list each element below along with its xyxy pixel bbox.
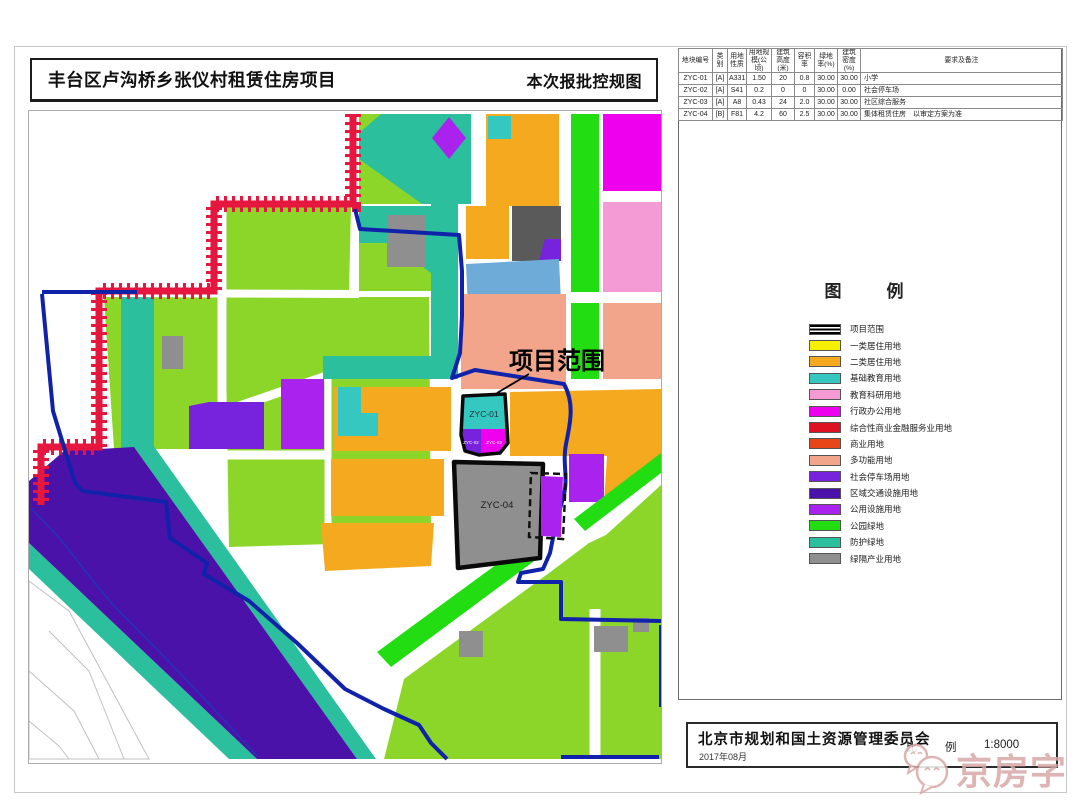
legend-label: 公用设施用地 — [850, 503, 901, 515]
plot-zyc03-label: ZYC-03 — [486, 440, 502, 445]
table-cell: 0.8 — [795, 73, 815, 85]
color-swatch — [809, 488, 841, 499]
legend-item: 一类居住用地 — [809, 337, 952, 353]
color-swatch — [809, 406, 841, 417]
table-cell: 30.00 — [838, 73, 861, 85]
table-cell: 30.00 — [838, 109, 861, 121]
watermark-text: 京房字 — [956, 743, 1067, 795]
table-cell: 0 — [772, 85, 795, 97]
table-cell: 30.00 — [815, 85, 838, 97]
table-cell: 0.00 — [838, 85, 861, 97]
table-header: 绿地率(%) — [815, 49, 838, 73]
table-cell: 30.00 — [815, 109, 838, 121]
table-cell: 集体租赁住房 以审定方案为准 — [861, 109, 1063, 121]
legend: 项目范围一类居住用地二类居住用地基础教育用地教育科研用地行政办公用地综合性商业金… — [809, 321, 952, 567]
plot-zyc04-label: ZYC-04 — [481, 500, 514, 511]
legend-item: 综合性商业金融服务业用地 — [809, 419, 952, 435]
table-cell: [A] — [713, 73, 728, 85]
utility-parcel — [281, 379, 324, 449]
chat-bubbles-icon — [900, 740, 954, 798]
table-header: 容积率 — [795, 49, 815, 73]
legend-label: 绿隔产业用地 — [850, 553, 901, 565]
table-cell: 30.00 — [838, 97, 861, 109]
table-cell: ZYC-02 — [679, 85, 713, 97]
color-swatch — [809, 373, 841, 384]
utility-parcel-east — [569, 454, 604, 502]
table-header: 用地性质 — [728, 49, 747, 73]
parking-parcel — [189, 402, 264, 449]
table-cell: ZYC-04 — [679, 109, 713, 121]
scope-label: 项目范围 — [509, 348, 605, 375]
table-cell: ZYC-03 — [679, 97, 713, 109]
legend-label: 防护绿地 — [850, 536, 884, 548]
color-swatch — [809, 520, 841, 531]
project-title: 丰台区卢沟桥乡张仪村租赁住房项目 — [32, 67, 336, 92]
table-cell: 2.5 — [795, 109, 815, 121]
gray-parcel — [162, 336, 183, 369]
color-swatch — [809, 438, 841, 449]
table-cell: 0.2 — [747, 85, 772, 97]
legend-label: 区域交通设施用地 — [850, 487, 918, 499]
table-header: 建筑密度(%) — [838, 49, 861, 73]
table-cell: ZYC-01 — [679, 73, 713, 85]
table-cell: A331 — [728, 73, 747, 85]
legend-item: 基础教育用地 — [809, 370, 952, 386]
table-cell: F81 — [728, 109, 747, 121]
color-swatch — [809, 471, 841, 482]
table-header-row: 地块编号类别用地性质用地规模(公顷)建筑高度(米)容积率绿地率(%)建筑密度(%… — [679, 49, 1063, 73]
table-cell: 2.0 — [795, 97, 815, 109]
table-cell: [A] — [713, 85, 728, 97]
table-row: ZYC-01[A]A3311.50200.830.0030.00小学 — [679, 73, 1063, 85]
watermark: 京房字 — [900, 736, 1080, 802]
table-cell: [A] — [713, 97, 728, 109]
legend-label: 教育科研用地 — [850, 389, 901, 401]
legend-item: 公园绿地 — [809, 518, 952, 534]
table-cell: [B] — [713, 109, 728, 121]
planning-map-panel: ZYC-01 ZYC-02 ZYC-03 ZYC-04 项目范围 — [28, 110, 662, 764]
legend-label: 行政办公用地 — [850, 405, 901, 417]
project-boundary-swatch — [809, 324, 841, 335]
table-cell: 1.50 — [747, 73, 772, 85]
table-cell: 4.2 — [747, 109, 772, 121]
school-block — [359, 206, 431, 291]
legend-item: 区域交通设施用地 — [809, 485, 952, 501]
color-swatch — [809, 340, 841, 351]
legend-item: 教育科研用地 — [809, 387, 952, 403]
color-swatch — [809, 356, 841, 367]
legend-item: 防护绿地 — [809, 534, 952, 550]
color-swatch — [809, 553, 841, 564]
legend-label: 一类居住用地 — [850, 340, 901, 352]
table-cell: 小学 — [861, 73, 1063, 85]
green-strip — [121, 297, 154, 449]
legend-label: 基础教育用地 — [850, 372, 901, 384]
legend-item: 社会停车场用地 — [809, 469, 952, 485]
legend-item: 项目范围 — [809, 321, 952, 337]
legend-title: 图 例 — [679, 277, 1063, 302]
table-cell: 社区综合服务 — [861, 97, 1063, 109]
legend-item: 商业用地 — [809, 436, 952, 452]
legend-label: 综合性商业金融服务业用地 — [850, 422, 952, 434]
table-header: 类别 — [713, 49, 728, 73]
plot-zyc02-label: ZYC-02 — [463, 440, 479, 445]
plot-zyc01: ZYC-01 ZYC-02 ZYC-03 — [461, 394, 508, 455]
legend-item: 二类居住用地 — [809, 354, 952, 370]
legend-label: 社会停车场用地 — [850, 471, 910, 483]
legend-item: 公用设施用地 — [809, 501, 952, 517]
color-swatch — [809, 389, 841, 400]
legend-item: 绿隔产业用地 — [809, 550, 952, 566]
plan-date: 2017年08月 — [699, 750, 747, 763]
right-panel: 地块编号类别用地性质用地规模(公顷)建筑高度(米)容积率绿地率(%)建筑密度(%… — [678, 48, 1062, 700]
color-swatch — [809, 422, 841, 433]
legend-item: 行政办公用地 — [809, 403, 952, 419]
table-cell: 30.00 — [815, 73, 838, 85]
color-swatch — [809, 455, 841, 466]
legend-label: 公园绿地 — [850, 520, 884, 532]
table-cell: S41 — [728, 85, 747, 97]
table-cell: A8 — [728, 97, 747, 109]
legend-label: 多功能用地 — [850, 454, 893, 466]
legend-label: 二类居住用地 — [850, 356, 901, 368]
plot-data-table: 地块编号类别用地性质用地规模(公顷)建筑高度(米)容积率绿地率(%)建筑密度(%… — [678, 48, 1063, 121]
map-title-bar: 丰台区卢沟桥乡张仪村租赁住房项目 本次报批控规图 — [30, 58, 658, 102]
table-header: 地块编号 — [679, 49, 713, 73]
table-cell: 0.43 — [747, 97, 772, 109]
table-cell: 社会停车场 — [861, 85, 1063, 97]
legend-label: 商业用地 — [850, 438, 884, 450]
legend-item: 多功能用地 — [809, 452, 952, 468]
legend-label: 项目范围 — [850, 323, 884, 335]
table-row: ZYC-02[A]S410.20030.000.00社会停车场 — [679, 85, 1063, 97]
table-header: 用地规模(公顷) — [747, 49, 772, 73]
table-cell: 0 — [795, 85, 815, 97]
table-cell: 60 — [772, 109, 795, 121]
color-swatch — [809, 537, 841, 548]
plot-zyc01-label: ZYC-01 — [469, 409, 499, 419]
table-header: 建筑高度(米) — [772, 49, 795, 73]
color-swatch — [809, 504, 841, 515]
planning-map: ZYC-01 ZYC-02 ZYC-03 ZYC-04 项目范围 — [29, 111, 661, 763]
table-cell: 20 — [772, 73, 795, 85]
table-row: ZYC-04[B]F814.2602.530.0030.00集体租赁住房 以审定… — [679, 109, 1063, 121]
table-row: ZYC-03[A]A80.43242.030.0030.00社区综合服务 — [679, 97, 1063, 109]
table-header: 要求及备注 — [861, 49, 1063, 73]
sheet-type-title: 本次报批控规图 — [526, 68, 656, 92]
table-cell: 24 — [772, 97, 795, 109]
agency-name: 北京市规划和国土资源管理委员会 — [698, 728, 931, 749]
table-cell: 30.00 — [815, 97, 838, 109]
